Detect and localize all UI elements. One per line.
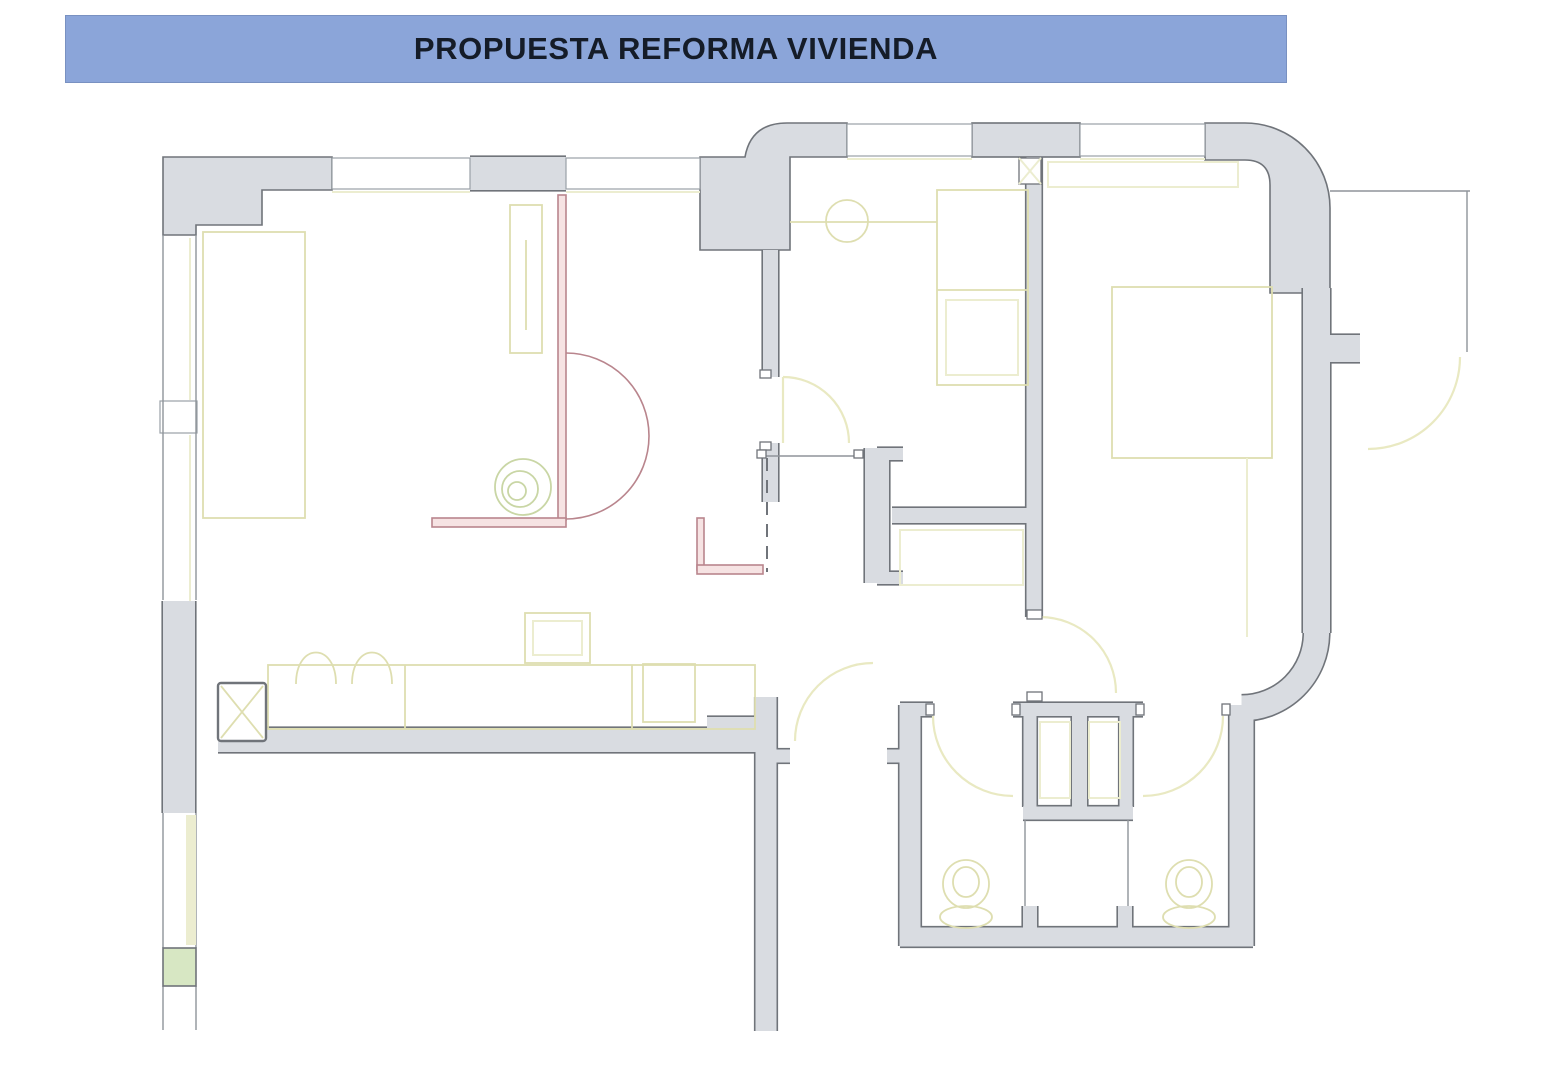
washer-counter xyxy=(937,190,1028,385)
window xyxy=(1080,124,1205,156)
new-partition-horizontal xyxy=(697,565,763,574)
new-door-swing xyxy=(566,353,649,519)
window xyxy=(566,158,700,189)
wall-top-right-corner xyxy=(1205,123,1330,293)
door-arc-neighbour xyxy=(1368,357,1460,449)
new-partition-vertical xyxy=(697,518,704,570)
structural-column xyxy=(218,683,266,741)
door-arc-bath-right xyxy=(1143,716,1223,796)
wall-top-segment xyxy=(972,123,1080,157)
plant-circle xyxy=(508,482,526,500)
new-partition-horizontal xyxy=(432,518,566,527)
page: PROPUESTA REFORMA VIVIENDA xyxy=(0,0,1543,1080)
appliance xyxy=(643,664,695,722)
tall-cabinet xyxy=(510,205,542,353)
hall-closet xyxy=(900,530,1023,585)
bedroom-closet xyxy=(1048,162,1238,187)
wall-top-center xyxy=(700,123,847,250)
shower-tray xyxy=(1089,722,1120,798)
window xyxy=(847,124,972,156)
hob-burner xyxy=(296,653,336,685)
laundry-room-fittings xyxy=(790,190,1028,385)
toilet xyxy=(940,860,992,928)
ventilation-duct xyxy=(1019,158,1041,184)
party-wall-line xyxy=(1330,191,1470,352)
floor-plan xyxy=(0,0,1543,1080)
door-arc-hall xyxy=(795,663,873,741)
shower-glass-lines xyxy=(1025,820,1128,906)
new-partition-vertical xyxy=(558,195,566,520)
door-jambs xyxy=(757,370,1230,715)
wall-bands xyxy=(179,157,1360,1031)
door-arc-dressing xyxy=(1040,617,1116,693)
wall xyxy=(1242,633,1317,708)
door-arc-bath-left xyxy=(933,716,1013,796)
reform-partitions xyxy=(432,195,763,574)
terrace-window-strip xyxy=(186,815,196,945)
hob-burner xyxy=(352,653,392,685)
shower-tray xyxy=(1040,722,1070,798)
kitchen-counter xyxy=(268,613,755,729)
table-circle xyxy=(826,200,868,242)
window xyxy=(332,158,470,189)
wall-top-left-corner xyxy=(163,157,332,235)
facade-green-box xyxy=(163,948,196,986)
wardrobe xyxy=(203,232,305,518)
window xyxy=(160,401,197,433)
door-arc-laundry xyxy=(783,377,849,443)
bed xyxy=(1112,287,1272,637)
toilet xyxy=(1163,860,1215,928)
